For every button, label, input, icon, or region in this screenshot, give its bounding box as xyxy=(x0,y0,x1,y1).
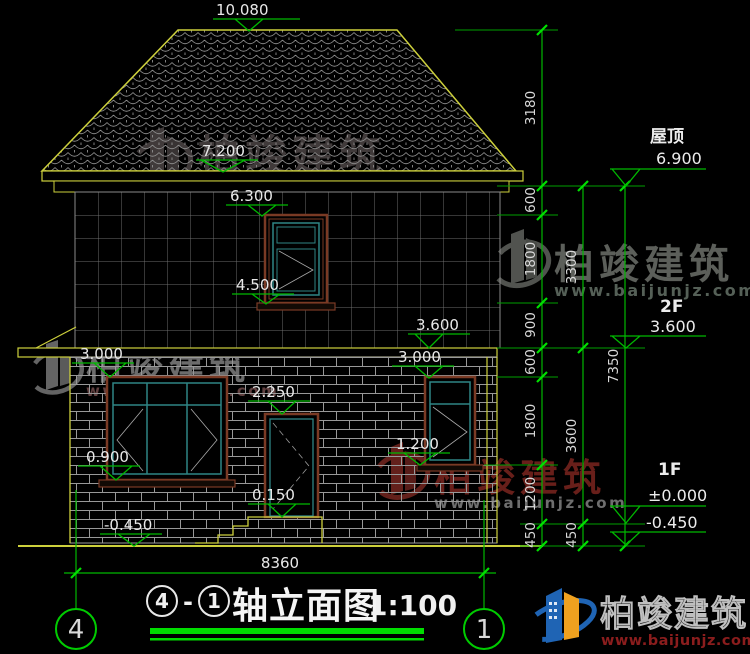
level-1f-window-sill-right: 1.200 xyxy=(396,435,439,453)
roof-label: 屋顶 xyxy=(650,127,684,147)
dim-1800-b: 1800 xyxy=(523,404,539,438)
brand-name-text: 柏竣建筑 xyxy=(600,594,748,635)
level-eave: 7.200 xyxy=(202,142,245,160)
logo-building-orange-icon xyxy=(564,592,579,640)
window-sill xyxy=(257,303,335,310)
dim-3180: 3180 xyxy=(523,91,539,125)
level-triangle-icon xyxy=(213,19,300,31)
cad-canvas: 柏竣建筑 www.baijunjz.com 柏竣建筑 www.baijunjz.… xyxy=(0,0,750,654)
title-text: 轴立面图 xyxy=(232,586,380,627)
roof-level-value: 6.900 xyxy=(656,149,702,168)
dim-7350-total: 7350 xyxy=(606,349,622,383)
drawing-title: 4 - 1 轴立面图 1:100 xyxy=(147,586,457,641)
level-door-top: 2.250 xyxy=(252,383,295,401)
dim-3600: 3600 xyxy=(564,419,580,453)
eave-band-lower xyxy=(54,181,509,192)
dim-1800-a: 1800 xyxy=(523,242,539,276)
roof-hip-outline xyxy=(42,30,516,171)
brand-url-text: www.baijunjz.com xyxy=(601,633,750,649)
title-underline-thin xyxy=(150,638,424,641)
basement-level-value: -0.450 xyxy=(646,513,698,532)
dim-3300: 3300 xyxy=(564,250,580,284)
title-underline-thick xyxy=(150,628,424,634)
elevation-drawing: 柏竣建筑 www.baijunjz.com 柏竣建筑 www.baijunjz.… xyxy=(0,0,750,654)
floor2-level-value: 3.600 xyxy=(650,317,696,336)
window-sill xyxy=(417,465,483,471)
level-ground-left: -0.450 xyxy=(104,516,152,534)
level-2f-window-top: 6.300 xyxy=(230,187,273,205)
dim-600-a: 600 xyxy=(523,187,539,213)
dim-600-b: 600 xyxy=(523,349,539,375)
dim-1200: 1200 xyxy=(523,477,539,511)
floor2-label: 2F xyxy=(660,297,683,317)
dim-450-a: 450 xyxy=(523,522,539,548)
brand-logo: 柏竣建筑 www.baijunjz.com xyxy=(521,588,750,649)
window-1f-left xyxy=(99,377,235,487)
eave-band-upper xyxy=(42,171,523,181)
dim-900: 900 xyxy=(523,312,539,338)
roof xyxy=(42,30,523,192)
level-2f-window-sill: 4.500 xyxy=(236,276,279,294)
level-triangle-icon xyxy=(610,169,706,186)
level-1f-window-top-left: 3.000 xyxy=(80,345,123,363)
title-scale: 1:100 xyxy=(368,589,457,622)
title-bubble-right-number: 1 xyxy=(207,589,221,613)
level-slab: 3.600 xyxy=(416,316,459,334)
floor-level-labels: 屋顶 6.900 2F 3.600 1F ±0.000 -0.450 xyxy=(646,127,707,532)
window-2f xyxy=(257,215,335,310)
overall-dim-value: 8360 xyxy=(261,554,299,572)
dimension-chain-inner: 3180 600 1800 900 600 1800 1200 450 xyxy=(523,91,539,548)
level-threshold: 0.150 xyxy=(252,486,295,504)
window-sill xyxy=(99,480,235,487)
title-separator: - xyxy=(183,588,193,616)
floor1-label: 1F xyxy=(658,460,681,480)
floor1-level-value: ±0.000 xyxy=(648,486,707,505)
logo-building-blue-icon xyxy=(546,588,562,643)
axis-bubble-1-number: 1 xyxy=(476,615,493,645)
level-1f-window-sill-left: 0.900 xyxy=(86,448,129,466)
dim-450-b: 450 xyxy=(564,522,580,548)
axis-bubble-4-number: 4 xyxy=(68,615,85,645)
level-1f-window-top-right: 3.000 xyxy=(398,348,441,366)
title-bubble-left-number: 4 xyxy=(155,589,169,613)
level-ridge: 10.080 xyxy=(216,1,269,19)
window-1f-right xyxy=(417,377,483,471)
